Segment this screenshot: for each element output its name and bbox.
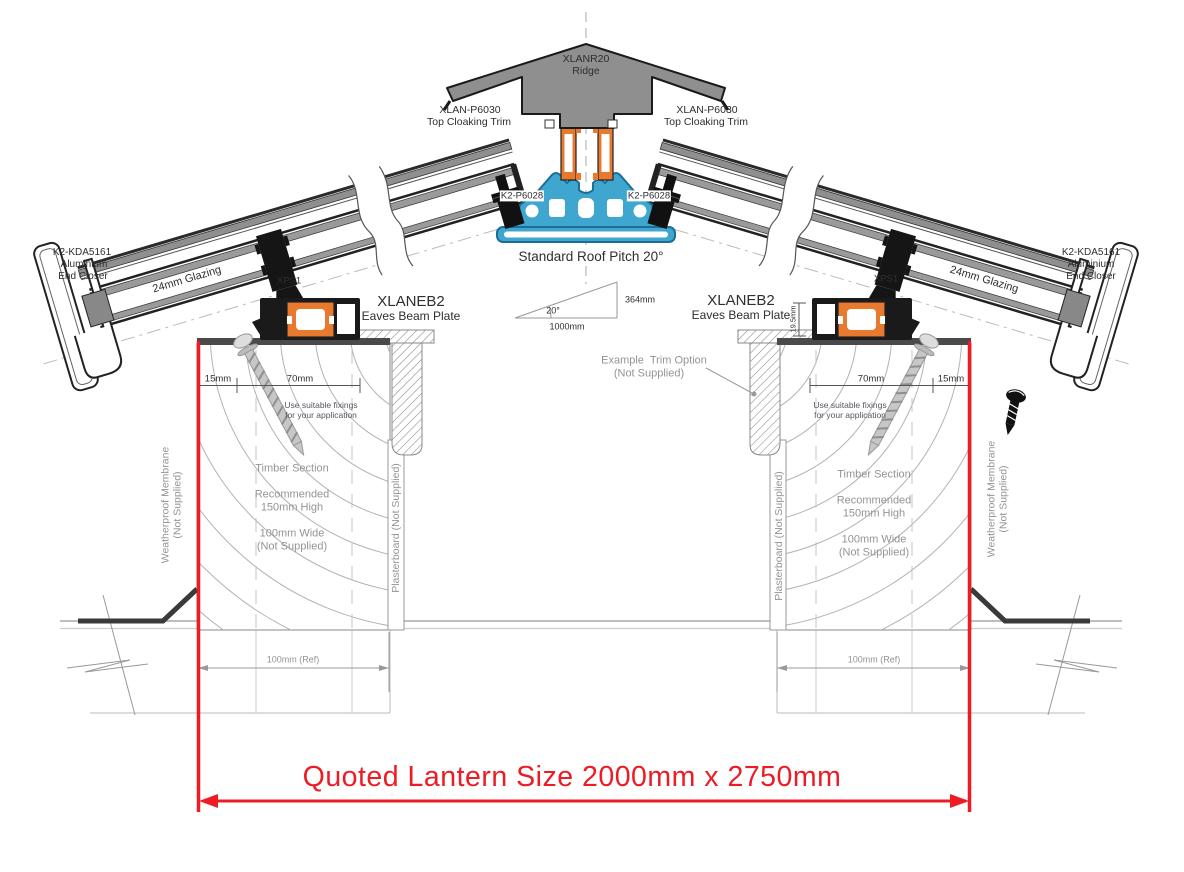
quoted-lantern-size-label: Quoted Lantern Size 2000mm x 2750mm [303,761,842,795]
left-fixings-note-1: Use suitable fixings [284,400,357,410]
right-beam-dim-label: 70mm [858,373,884,384]
right-membrane-line [971,589,1090,621]
pitch-rise-label: 364mm [625,295,655,306]
screw-icon [998,388,1027,438]
right-cloaking-part-label: XLAN-P6030 [676,104,737,116]
right-xps-label: XPS1 [874,273,898,284]
right-eaves-beam-name-label: Eaves Beam Plate [692,308,791,322]
left-end-closer-label-3: End Closer [58,271,107,283]
left-eaves-beam-name-label: Eaves Beam Plate [362,309,461,323]
left-membrane-line [78,589,197,621]
right-plasterboard-note: Plasterboard (Not Supplied) [773,471,785,601]
left-end-closer-label-2: Aluminium [61,259,108,271]
left-ref-dim-label: 100mm (Ref) [267,655,320,666]
technical-drawing [0,0,1184,872]
left-xps-label: XPS1 [277,275,301,286]
left-eaves-beam [252,298,360,340]
ridge-name-label: Ridge [572,65,599,77]
left-end-closer-label-1: K2-KDA5161 [53,247,111,259]
ridge-part-label: XLANR20 [563,53,610,65]
right-cloaking-name-label: Top Cloaking Trim [664,116,748,128]
left-beam-dim-label: 70mm [287,373,313,384]
right-fixings-note-2: for your application [814,410,886,420]
break-mark-right [1036,595,1117,715]
beam-height-dim-label: 19.5mm [790,305,799,332]
trim-option-label-1: Example Trim Option [601,355,707,368]
left-cloaking-name-label: Top Cloaking Trim [427,116,511,128]
left-membrane-note: Weatherproof Membrane(Not Supplied) [160,447,185,564]
left-plasterboard-note: Plasterboard (Not Supplied) [390,463,402,593]
right-edge-dim-label: 15mm [938,373,964,384]
pitch-run-label: 1000mm [549,322,584,333]
right-end-closer-label-2: Aluminium [1068,259,1115,271]
pitch-note-label: Standard Roof Pitch 20° [519,249,664,265]
roof-lantern-section-drawing: XLANR20 Ridge XLAN-P6030 Top Cloaking Tr… [0,0,1184,872]
ridge-profile [561,126,613,180]
right-timber-note: Timber Section Recommended150mm High 100… [837,469,912,560]
right-end-closer-label-3: End Closer [1066,271,1115,283]
right-end-closer-label-1: K2-KDA5161 [1062,247,1120,259]
pitch-angle-label: 20° [546,306,560,317]
left-timber-note: Timber Section Recommended150mm High 100… [255,463,330,554]
right-ref-dim-label: 100mm (Ref) [848,655,901,666]
left-edge-dim-label: 15mm [205,373,231,384]
left-glazing-bar-label: K2-P6028 [500,190,544,201]
left-fixings-note-2: for your application [285,410,357,420]
trim-option-leader [706,368,757,397]
pitch-triangle [515,282,617,318]
right-eaves-beam [812,298,920,340]
trim-option-label-2: (Not Supplied) [614,368,684,381]
right-fixings-note-1: Use suitable fixings [813,400,886,410]
left-cloaking-part-label: XLAN-P6030 [439,104,500,116]
right-membrane-note: Weatherproof Membrane(Not Supplied) [986,441,1011,558]
break-mark-left [67,595,148,715]
right-glazing-bar-label: K2-P6028 [627,190,671,201]
